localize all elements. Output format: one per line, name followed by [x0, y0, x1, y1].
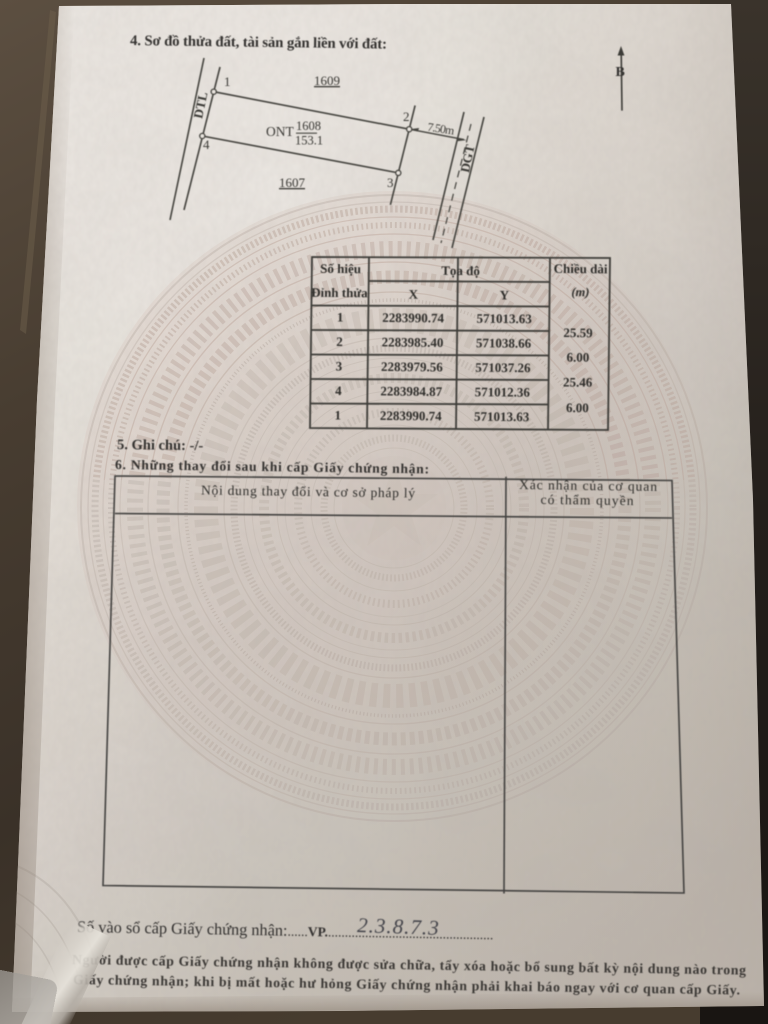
svg-text:153.1: 153.1 — [295, 134, 323, 148]
svg-text:7.50m: 7.50m — [427, 120, 456, 138]
svg-text:Tọa độ: Tọa độ — [441, 263, 480, 278]
svg-text:2: 2 — [403, 109, 410, 124]
svg-text:6.00: 6.00 — [566, 400, 589, 415]
svg-text:6.00: 6.00 — [566, 350, 589, 365]
svg-text:1609: 1609 — [314, 73, 340, 88]
svg-text:DGT: DGT — [457, 143, 478, 174]
svg-text:2283984.87: 2283984.87 — [380, 383, 442, 399]
svg-text:ONT: ONT — [266, 124, 294, 139]
svg-text:1: 1 — [334, 407, 341, 422]
svg-text:1608: 1608 — [296, 119, 321, 133]
svg-text:571013.63: 571013.63 — [474, 409, 530, 424]
svg-text:571037.26: 571037.26 — [475, 360, 531, 375]
svg-text:4. Sơ đồ thửa đất, tài sản gắn: 4. Sơ đồ thửa đất, tài sản gắn liền với … — [130, 33, 387, 53]
svg-text:25.59: 25.59 — [563, 325, 593, 340]
svg-text:25.46: 25.46 — [563, 374, 593, 389]
svg-text:571038.66: 571038.66 — [476, 335, 532, 350]
svg-text:1: 1 — [337, 310, 344, 325]
svg-text:2283979.56: 2283979.56 — [381, 359, 443, 375]
svg-text:3: 3 — [387, 175, 394, 190]
svg-text:571013.63: 571013.63 — [477, 311, 533, 326]
svg-text:571012.36: 571012.36 — [475, 384, 531, 399]
svg-text:Số hiệu: Số hiệu — [320, 261, 361, 276]
svg-text:(m): (m) — [571, 285, 589, 299]
svg-text:Chiều dài: Chiều dài — [554, 261, 608, 276]
svg-text:2283985.40: 2283985.40 — [382, 334, 444, 350]
svg-text:4: 4 — [203, 137, 210, 152]
svg-text:có thẩm quyền: có thẩm quyền — [540, 492, 633, 508]
svg-text:X: X — [409, 287, 419, 302]
svg-text:1607: 1607 — [279, 175, 306, 190]
svg-text:Y: Y — [500, 287, 510, 302]
svg-text:3: 3 — [336, 359, 343, 374]
svg-text:4: 4 — [335, 383, 342, 398]
svg-text:2.3.8.7.3: 2.3.8.7.3 — [357, 913, 440, 940]
svg-text:Nội dung thay đổi và cơ sở phá: Nội dung thay đổi và cơ sở pháp lý — [201, 483, 415, 501]
svg-text:2: 2 — [336, 334, 343, 349]
svg-text:6. Những thay đổi sau khi cấp: 6. Những thay đổi sau khi cấp Giấy chứng… — [115, 457, 429, 476]
svg-text:1: 1 — [224, 74, 231, 89]
svg-text:B: B — [616, 65, 625, 80]
svg-text:5. Ghi chú: -/-: 5. Ghi chú: -/- — [117, 437, 204, 454]
svg-text:2283990.74: 2283990.74 — [380, 408, 442, 424]
svg-text:2283990.74: 2283990.74 — [382, 310, 444, 326]
svg-text:Đỉnh thửa: Đỉnh thửa — [311, 285, 368, 300]
